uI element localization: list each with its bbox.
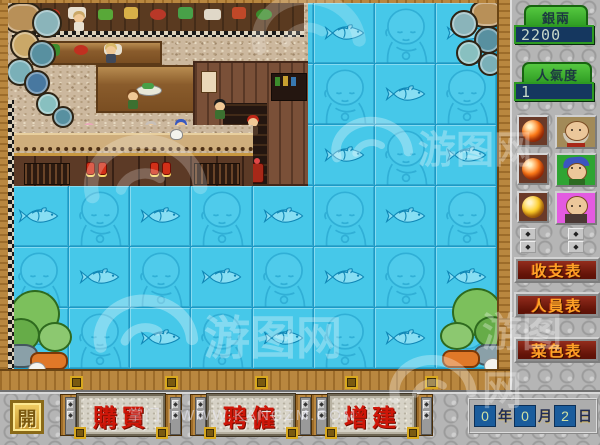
- hire-button-stone: 聘僱: [207, 394, 295, 436]
- day-unit: 日: [578, 406, 592, 426]
- staff-row: [517, 191, 599, 225]
- buy-button-stone: 購買: [77, 394, 165, 436]
- map-tile-head[interactable]: [436, 186, 497, 247]
- expand-button[interactable]: ◆◆增建◆◆: [311, 394, 433, 436]
- map-tile-fish[interactable]: [375, 64, 436, 125]
- map-tile-fish[interactable]: [130, 186, 191, 247]
- menu-report-button[interactable]: 菜色表: [514, 337, 600, 363]
- map-tile-head[interactable]: [253, 247, 314, 308]
- lantern-icon: [162, 162, 171, 175]
- map-tile-head[interactable]: [130, 247, 191, 308]
- year-value: 0: [474, 405, 496, 427]
- right-spinner: ◆ ◆: [568, 228, 586, 256]
- npc-sprite: [72, 11, 86, 31]
- map-frame: [0, 369, 510, 390]
- fish-icon: [384, 83, 428, 105]
- staff-row: [517, 115, 599, 149]
- npc-sprite: [126, 89, 140, 109]
- map-tile-head[interactable]: [314, 64, 375, 125]
- map-tile-fish[interactable]: [191, 247, 252, 308]
- fish-icon: [139, 205, 183, 227]
- head-icon: [194, 310, 250, 369]
- date-panel: 0年0月2日: [468, 398, 598, 434]
- head-icon: [317, 66, 373, 125]
- map-tile-fish[interactable]: [8, 186, 69, 247]
- fish-icon: [200, 266, 244, 288]
- lantern-icon: [98, 162, 107, 175]
- head-icon: [378, 127, 434, 186]
- lantern-icon: [150, 162, 159, 175]
- food-item: [178, 7, 193, 19]
- open-close-button[interactable]: 開: [10, 400, 44, 434]
- food-item: [256, 9, 272, 20]
- map-frame: [0, 0, 8, 390]
- elder-portrait[interactable]: [555, 115, 597, 149]
- head-icon: [72, 188, 128, 247]
- fish-icon: [445, 144, 489, 166]
- fish-icon: [323, 266, 367, 288]
- spin-down-button[interactable]: ◆: [520, 241, 536, 253]
- year-unit: 年: [498, 406, 512, 426]
- money-value: 2200: [514, 25, 594, 44]
- sidebar: 銀兩 2200 人氣度 1 ◆ ◆ ◆ ◆ 收支表人員表菜色表: [510, 0, 600, 390]
- food-item: [124, 7, 138, 19]
- head-icon: [133, 249, 189, 308]
- npc-sprite: [104, 43, 118, 63]
- fish-icon: [323, 22, 367, 44]
- month-unit: 月: [538, 406, 552, 426]
- map-frame: [0, 0, 510, 3]
- head-icon: [317, 310, 373, 369]
- window: [194, 163, 240, 185]
- staff-report-button[interactable]: 人員表: [514, 292, 600, 318]
- map-frame: [497, 0, 510, 390]
- head-icon: [194, 188, 250, 247]
- hire-button[interactable]: ◆◆聘僱◆◆: [190, 394, 312, 436]
- fish-icon: [384, 327, 428, 349]
- fish-icon: [262, 327, 306, 349]
- map-frame-trim: [8, 100, 14, 370]
- food-item: [150, 9, 166, 20]
- fish-icon: [384, 205, 428, 227]
- bald-portrait[interactable]: [555, 191, 597, 225]
- fish-icon: [139, 327, 183, 349]
- orange-orb-button[interactable]: [517, 153, 549, 185]
- buy-button[interactable]: ◆◆購買◆◆: [60, 394, 182, 436]
- staff-row: [517, 153, 599, 187]
- map-tile-head[interactable]: [69, 186, 130, 247]
- popularity-value: 1: [514, 82, 594, 101]
- fish-icon: [323, 144, 367, 166]
- map-tile-head[interactable]: [314, 308, 375, 369]
- fish-icon: [17, 205, 61, 227]
- food-item: [74, 45, 88, 55]
- bottom-bar: 開 ◆◆購買◆◆◆◆聘僱◆◆◆◆增建◆◆ 0年0月2日: [0, 390, 600, 445]
- map-tile-head[interactable]: [375, 3, 436, 64]
- food-item: [204, 9, 221, 20]
- head-icon: [378, 5, 434, 64]
- map-tile-fish[interactable]: [253, 308, 314, 369]
- map-tile-head[interactable]: [191, 308, 252, 369]
- map-tile-head[interactable]: [375, 125, 436, 186]
- fish-icon: [445, 266, 489, 288]
- yellow-orb-icon: [522, 196, 544, 218]
- youth-portrait[interactable]: [555, 153, 597, 187]
- game-window: { "hud": { "money_label": "銀兩", "money_v…: [0, 0, 600, 445]
- food-item: [232, 7, 246, 19]
- head-icon: [378, 249, 434, 308]
- orange-orb-icon: [522, 158, 544, 180]
- food-item: [98, 9, 113, 20]
- left-spinner: ◆ ◆: [520, 228, 538, 256]
- map-tile-fish[interactable]: [130, 308, 191, 369]
- spin-down-button[interactable]: ◆: [568, 241, 584, 253]
- npc-sprite: [213, 99, 227, 119]
- map-tile-fish[interactable]: [436, 125, 497, 186]
- popularity-label: 人氣度: [522, 62, 592, 84]
- room-shelf: [271, 73, 307, 101]
- map-tile-fish[interactable]: [253, 186, 314, 247]
- spin-up-button[interactable]: ◆: [568, 228, 584, 240]
- map-tile-fish[interactable]: [314, 247, 375, 308]
- yellow-orb-button[interactable]: [517, 191, 549, 223]
- restaurant-front: [8, 125, 253, 186]
- head-icon: [317, 188, 373, 247]
- fish-icon: [262, 205, 306, 227]
- front-wall: [8, 153, 253, 186]
- dining-bench: [8, 133, 253, 151]
- day-value: 2: [554, 405, 576, 427]
- spin-up-button[interactable]: ◆: [520, 228, 536, 240]
- menu-board: [201, 71, 217, 93]
- map-tile-fish[interactable]: [314, 125, 375, 186]
- game-map: [0, 0, 510, 390]
- head-icon: [439, 188, 495, 247]
- map-tile-head[interactable]: [375, 247, 436, 308]
- map-tile-fish[interactable]: [375, 308, 436, 369]
- map-tile-fish[interactable]: [314, 3, 375, 64]
- orange-orb-icon: [522, 120, 544, 142]
- month-value: 0: [514, 405, 536, 427]
- lantern-icon: [86, 162, 95, 175]
- map-tile-fish[interactable]: [375, 186, 436, 247]
- fish-icon: [78, 266, 122, 288]
- income-expense-report-button[interactable]: 收支表: [514, 257, 600, 283]
- map-tile-head[interactable]: [191, 186, 252, 247]
- expand-button-stone: 增建: [328, 394, 416, 436]
- cat-sprite: [170, 129, 183, 140]
- map-tile-head[interactable]: [314, 186, 375, 247]
- window: [24, 163, 70, 185]
- head-icon: [256, 249, 312, 308]
- money-label: 銀兩: [524, 5, 588, 27]
- orange-orb-button[interactable]: [517, 115, 549, 147]
- food-item: [142, 83, 154, 89]
